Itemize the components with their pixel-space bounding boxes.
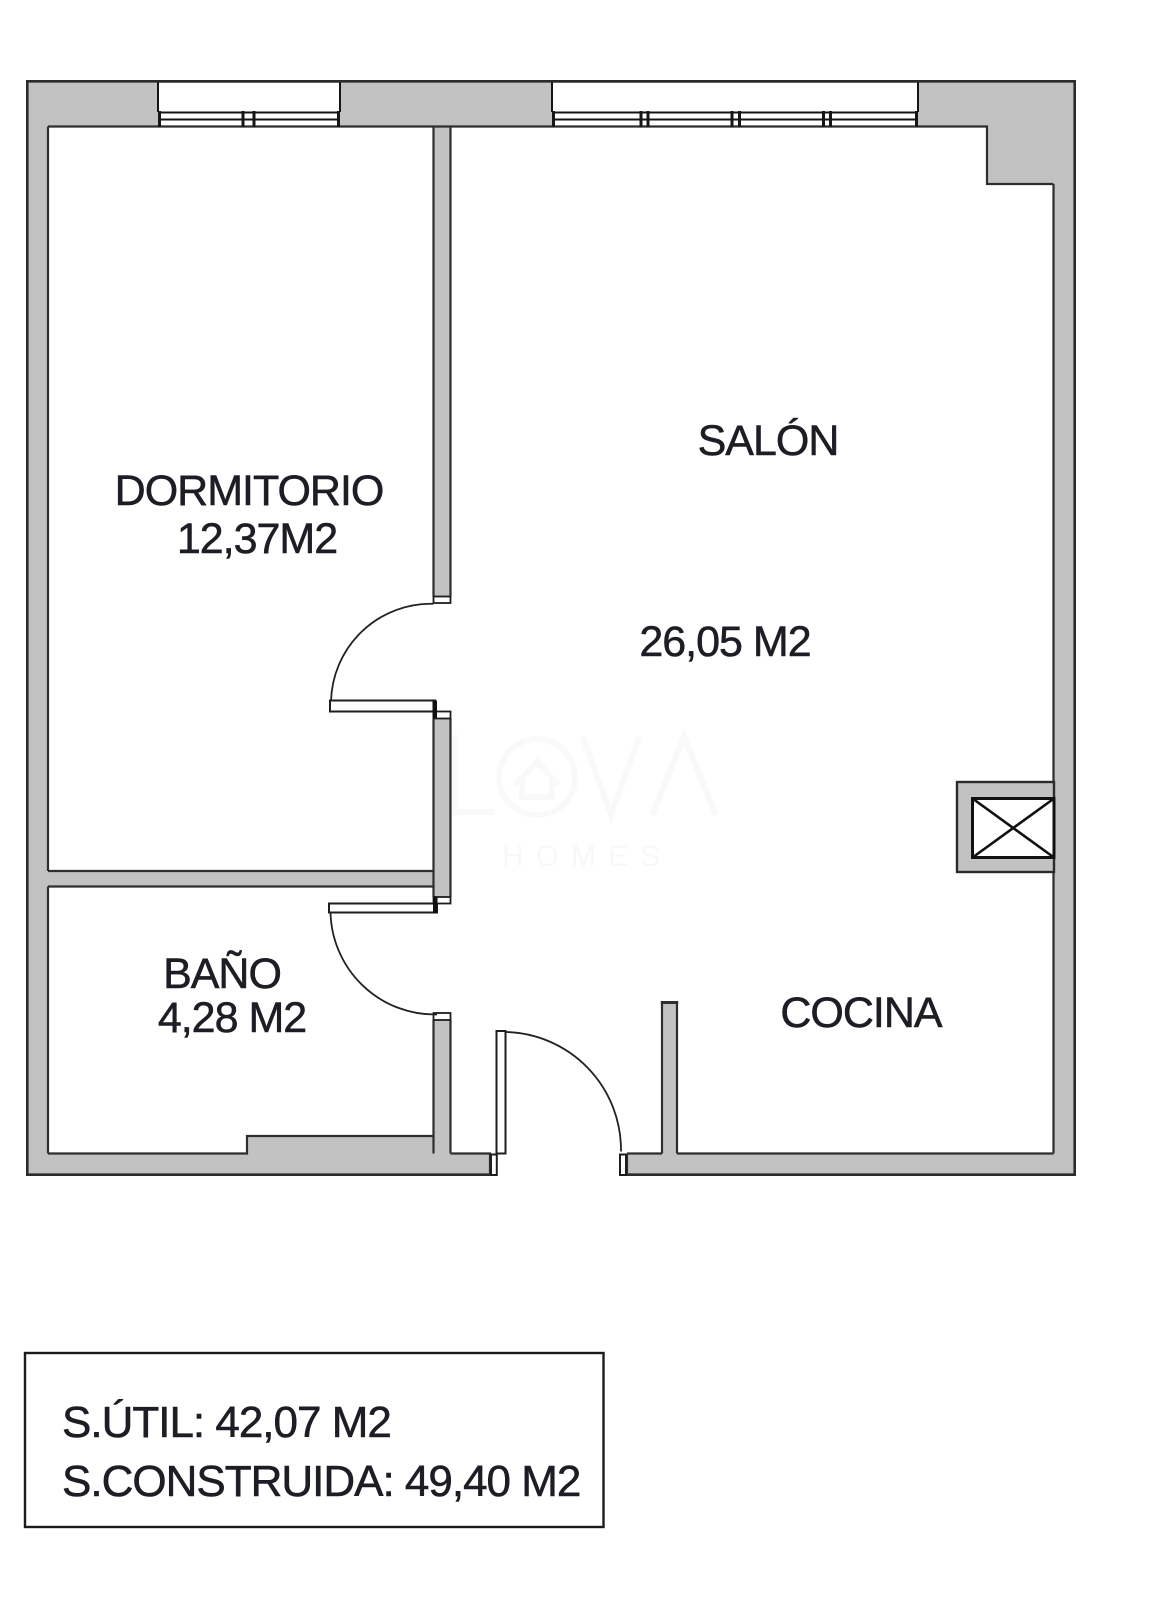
svg-text:26,05 M2: 26,05 M2 <box>639 618 810 666</box>
svg-text:COCINA: COCINA <box>780 989 943 1037</box>
svg-text:BAÑO: BAÑO <box>163 950 281 998</box>
svg-text:4,28 M2: 4,28 M2 <box>158 994 306 1042</box>
svg-text:DORMITORIO: DORMITORIO <box>115 467 384 515</box>
svg-text:S.ÚTIL: 42,07 M2: S.ÚTIL: 42,07 M2 <box>62 1398 391 1447</box>
svg-text:SALÓN: SALÓN <box>698 417 839 465</box>
svg-text:S.CONSTRUIDA: 49,40 M2: S.CONSTRUIDA: 49,40 M2 <box>62 1457 580 1506</box>
svg-text:HOMES: HOMES <box>502 840 672 873</box>
svg-text:12,37M2: 12,37M2 <box>177 515 337 563</box>
